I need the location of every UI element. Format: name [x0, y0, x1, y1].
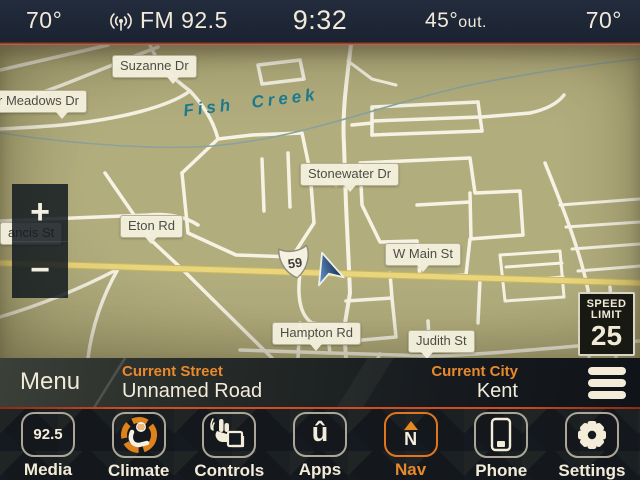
map-roads — [0, 45, 640, 358]
appbar-item-controls[interactable]: Controls — [187, 412, 271, 480]
street-label-suzanne: Suzanne Dr — [112, 55, 197, 78]
nav-map[interactable]: Fish Creek Suzanne Dr r Meadows Dr Stone… — [0, 45, 640, 358]
map-zoom-panel: + − — [12, 184, 68, 298]
appbar-item-phone[interactable]: Phone — [459, 412, 543, 480]
current-street-block: Current Street Unnamed Road — [122, 363, 262, 402]
current-street-value: Unnamed Road — [122, 380, 262, 402]
zoom-out-button[interactable]: − — [12, 242, 68, 299]
current-street-label: Current Street — [122, 363, 262, 380]
broadcast-antenna-icon — [110, 10, 132, 32]
infotainment-screen: 70° FM 92.5 9:32 45°out. 70° — [0, 0, 640, 480]
north-compass-icon: N — [384, 412, 438, 457]
hamburger-menu-icon[interactable] — [588, 367, 626, 403]
passenger-temp: 70° — [586, 7, 622, 34]
street-label-hampton: Hampton Rd — [272, 322, 361, 345]
current-city-label: Current City — [431, 363, 518, 380]
current-city-value: Kent — [431, 380, 518, 402]
appbar-item-apps[interactable]: û Apps — [278, 412, 362, 480]
street-label-eton: Eton Rd — [120, 215, 183, 238]
reflection-streak — [330, 358, 400, 407]
climate-seat-fan-icon — [112, 412, 166, 458]
nav-info-bar: Menu Current Street Unnamed Road Current… — [0, 358, 640, 407]
zoom-in-button[interactable]: + — [12, 184, 68, 242]
clock: 9:32 — [293, 5, 348, 36]
radio-station: FM 92.5 — [140, 7, 228, 34]
speed-limit-sign: SPEED LIMIT 25 — [578, 292, 635, 356]
status-bar: 70° FM 92.5 9:32 45°out. 70° — [0, 0, 640, 42]
app-bar: 92.5 Media Climate — [0, 409, 640, 480]
uconnect-apps-icon: û — [293, 412, 347, 457]
appbar-item-climate[interactable]: Climate — [97, 412, 181, 480]
media-frequency: 92.5 — [33, 426, 62, 443]
smartphone-icon — [474, 412, 528, 458]
hand-controls-icon — [202, 412, 256, 458]
media-frequency-icon: 92.5 — [21, 412, 75, 457]
appbar-item-nav[interactable]: N Nav — [369, 412, 453, 480]
appbar-item-media[interactable]: 92.5 Media — [6, 412, 90, 480]
gear-icon — [565, 412, 619, 458]
menu-button[interactable]: Menu — [20, 368, 80, 396]
svg-text:59: 59 — [287, 255, 303, 272]
appbar-item-settings[interactable]: Settings — [550, 412, 634, 480]
speed-limit-value: 25 — [580, 321, 633, 351]
driver-temp: 70° — [26, 7, 62, 34]
street-label-wmain: W Main St — [385, 243, 461, 266]
street-label-stonewater: Stonewater Dr — [300, 163, 399, 186]
street-label-meadows: r Meadows Dr — [0, 90, 87, 113]
current-city-block: Current City Kent — [431, 363, 518, 402]
vehicle-position-arrow — [307, 248, 347, 288]
street-label-judith: Judith St — [408, 330, 475, 353]
outside-temp: 45°out. — [425, 9, 487, 33]
